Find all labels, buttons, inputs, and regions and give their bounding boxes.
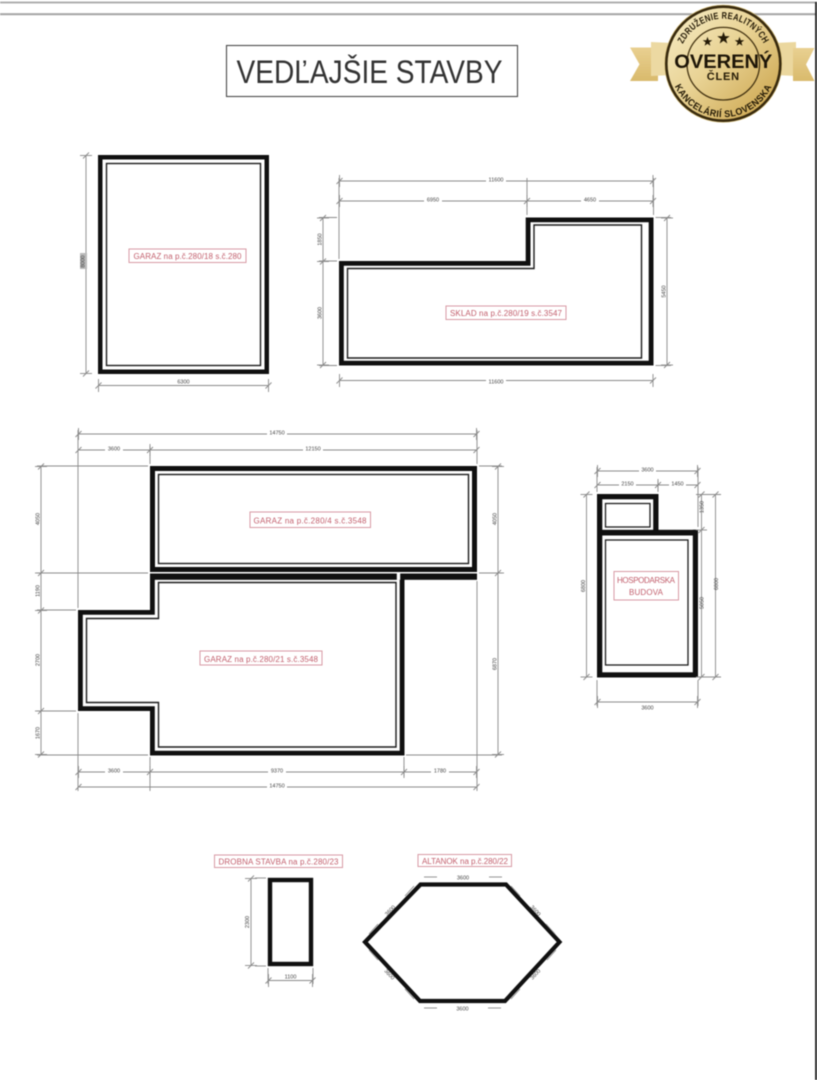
svg-text:12150: 12150 (305, 447, 320, 453)
svg-text:6870: 6870 (493, 658, 499, 670)
svg-text:6950: 6950 (427, 198, 439, 204)
svg-text:4050: 4050 (493, 513, 499, 525)
svg-text:4050: 4050 (36, 513, 42, 525)
svg-text:6300: 6300 (177, 380, 189, 386)
svg-text:1670: 1670 (36, 727, 42, 739)
svg-text:ČLEN: ČLEN (707, 70, 740, 83)
svg-text:1450: 1450 (671, 482, 683, 488)
svg-text:ALTANOK na p.č.280/22: ALTANOK na p.č.280/22 (422, 857, 509, 866)
svg-text:3600: 3600 (108, 447, 120, 453)
svg-text:SKLAD na p.č.280/19 s.č.3547: SKLAD na p.č.280/19 s.č.3547 (450, 309, 563, 318)
svg-text:3600: 3600 (641, 706, 653, 712)
svg-text:1350: 1350 (700, 501, 706, 513)
svg-text:14750: 14750 (269, 431, 284, 437)
svg-text:3600: 3600 (318, 307, 324, 319)
svg-text:1190: 1190 (36, 585, 42, 597)
svg-text:9370: 9370 (271, 769, 283, 775)
svg-text:6800: 6800 (714, 578, 720, 590)
svg-text:3600: 3600 (641, 468, 653, 474)
svg-text:OVERENÝ: OVERENÝ (674, 49, 772, 73)
svg-text:1850: 1850 (318, 233, 324, 245)
svg-text:BUDOVA: BUDOVA (629, 588, 664, 597)
svg-text:8000: 8000 (81, 255, 87, 267)
svg-text:3600: 3600 (108, 769, 120, 775)
svg-text:11600: 11600 (489, 178, 504, 184)
svg-text:2700: 2700 (36, 654, 42, 666)
svg-text:HOSPODARSKA: HOSPODARSKA (617, 576, 676, 585)
svg-text:VEDĽAJŠIE STAVBY: VEDĽAJŠIE STAVBY (237, 53, 503, 90)
svg-text:GARAZ na p.č.280/4 s.č.3548: GARAZ na p.č.280/4 s.č.3548 (254, 517, 368, 526)
svg-text:GARAZ na p.č.280/21 s.č.3548: GARAZ na p.č.280/21 s.č.3548 (204, 655, 319, 664)
svg-text:3600: 3600 (456, 1007, 468, 1013)
svg-text:14750: 14750 (269, 784, 284, 790)
svg-text:1100: 1100 (285, 975, 297, 981)
svg-text:4650: 4650 (584, 198, 596, 204)
svg-text:2150: 2150 (621, 482, 633, 488)
svg-text:3600: 3600 (457, 876, 469, 882)
svg-text:1780: 1780 (434, 769, 446, 775)
svg-text:11600: 11600 (489, 380, 504, 386)
svg-text:DROBNA STAVBA na p.č.280/23: DROBNA STAVBA na p.č.280/23 (219, 858, 340, 867)
svg-text:GARAZ na p.č.280/18 s.č.280: GARAZ na p.č.280/18 s.č.280 (134, 252, 243, 261)
svg-text:6800: 6800 (581, 580, 587, 592)
svg-text:5450: 5450 (662, 285, 668, 297)
svg-text:5050: 5050 (700, 597, 706, 609)
svg-text:2300: 2300 (245, 916, 251, 928)
